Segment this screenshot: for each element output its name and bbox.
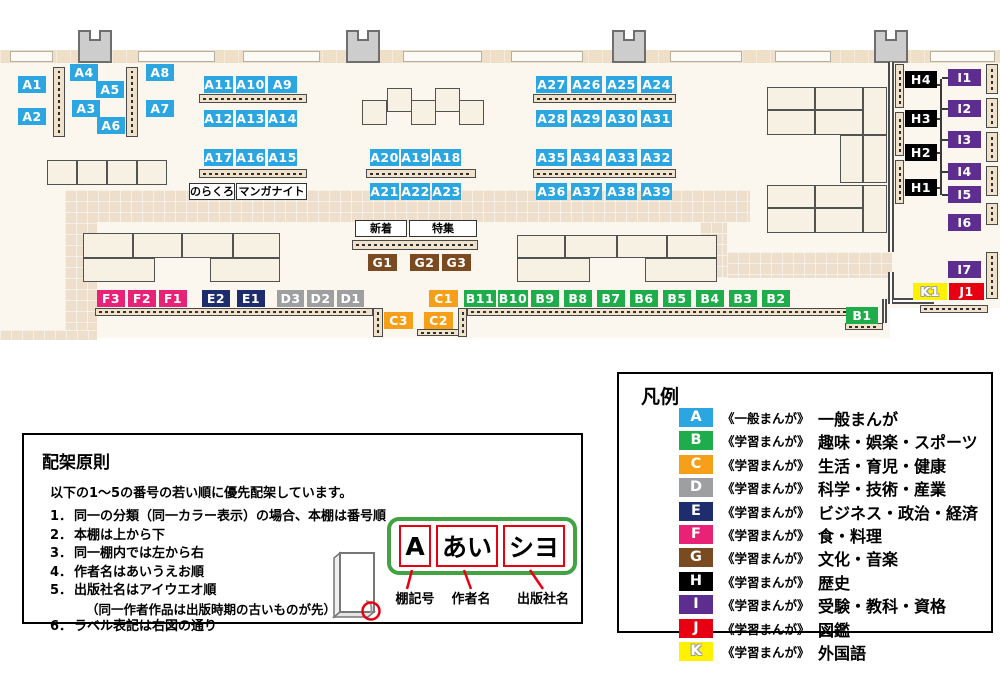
legend-chip-h: H (679, 572, 713, 591)
shelf-label-a17: A17 (204, 149, 233, 166)
legend-chip-a: A (679, 408, 713, 427)
shelf-label-b2: B2 (762, 290, 790, 307)
legend-label: ビジネス・政治・経済 (818, 500, 978, 524)
shelf-label-d2: D2 (307, 290, 334, 307)
table-rect (645, 258, 717, 282)
shelf-label-a3: A3 (72, 100, 100, 117)
wall-window (138, 51, 215, 62)
shelf-label-a21: A21 (370, 183, 399, 200)
shelf-strip (986, 98, 998, 128)
legend-row-i: I《学習まんが》受験・教科・資格 (679, 595, 946, 614)
shelf-label-c2: C2 (424, 312, 453, 329)
legend-type: 《学習まんが》 (722, 431, 818, 450)
table-rect (565, 235, 617, 258)
shelf-strip (986, 132, 998, 162)
shelf-label-a5: A5 (96, 81, 124, 98)
legend-chip-f: F (679, 525, 713, 544)
shelf-label-a34: A34 (571, 149, 602, 166)
shelf-label-a12: A12 (204, 110, 233, 127)
shelf-strip (373, 308, 383, 337)
shelf-label-i2: I2 (948, 100, 981, 117)
legend-row-d: D《学習まんが》科学・技術・産業 (679, 478, 946, 497)
pillar (78, 30, 112, 63)
pillar (346, 30, 380, 63)
shelf-label-a31: A31 (641, 110, 672, 127)
shelf-label-g1: G1 (368, 254, 397, 271)
interior-wall (882, 299, 887, 323)
label-caption-2: 出版社名 (512, 588, 574, 607)
legend-type: 《一般まんが》 (722, 408, 818, 427)
table-rect (863, 185, 887, 233)
shelf-label-e1: E1 (237, 290, 265, 307)
table-rect (815, 185, 863, 208)
legend-type: 《学習まんが》 (722, 548, 818, 567)
wall-window (243, 51, 320, 62)
shelf-strip (95, 308, 373, 316)
shelf-label-a2: A2 (18, 108, 46, 125)
legend-row-f: F《学習まんが》食・料理 (679, 525, 882, 544)
table-rect (83, 233, 133, 258)
wall-window (775, 51, 831, 62)
table-rect (767, 110, 815, 135)
shelf-strip (467, 308, 866, 316)
shelf-label-a4: A4 (70, 64, 98, 81)
table-rect (767, 208, 815, 233)
table-rect (362, 100, 387, 125)
legend-row-a: A《一般まんが》一般まんが (679, 408, 898, 427)
shelf-label-i1: I1 (948, 69, 981, 86)
principles-item-text: ラベル表記は右図の通り (74, 618, 217, 637)
shelf-label-h2: H2 (905, 144, 937, 161)
shelf-label-a13: A13 (236, 110, 265, 127)
legend-row-k: K《学習まんが》外国語 (679, 642, 866, 661)
legend-row-h: H《学習まんが》歴史 (679, 572, 850, 591)
shelf-strip (533, 169, 676, 178)
table-rect (435, 88, 460, 112)
shelf-label-h4: H4 (905, 71, 937, 88)
wall-window (670, 51, 742, 62)
shelf-strip (53, 67, 65, 137)
shelf-label-a24: A24 (641, 76, 672, 93)
label-caption-1: 作者名 (448, 588, 494, 607)
legend-type: 《学習まんが》 (722, 478, 818, 497)
shelf-strip (895, 160, 904, 204)
connector-line (940, 79, 942, 195)
table-rect (840, 135, 863, 183)
shelf-label-c1: C1 (429, 290, 458, 307)
shelf-label-f1: F1 (159, 290, 187, 307)
map-area: A1A2A4A5A3A6A8A7A11A10A9A12A13A14A17A16A… (0, 0, 1000, 360)
map-callout-1: マンガナイト (236, 183, 307, 200)
legend-title: 凡例 (641, 382, 679, 409)
shelf-strip (126, 67, 138, 137)
shelf-label-a32: A32 (641, 149, 672, 166)
principles-item-text: 本棚は上から下 (74, 527, 165, 546)
shelf-label-i3: I3 (948, 131, 981, 148)
shelf-label-a9: A9 (268, 76, 297, 93)
interior-wall (888, 62, 894, 252)
pillar-notch (623, 30, 635, 41)
walkway-segment (0, 330, 97, 340)
shelf-label-a7: A7 (146, 100, 174, 117)
shelf-label-a11: A11 (204, 76, 233, 93)
pillar-notch (357, 30, 369, 41)
label-segment-0: A (399, 525, 431, 567)
principles-item-text: 同一の分類（同一カラー表示）の場合、本棚は番号順 (74, 508, 386, 527)
book-illustration (328, 545, 388, 625)
shelf-label-a20: A20 (370, 149, 399, 166)
shelf-strip (986, 64, 998, 94)
principles-item-number: 6． (50, 618, 74, 637)
wall-window (10, 51, 53, 62)
legend-row-j: J《学習まんが》図鑑 (679, 619, 850, 638)
legend-row-b: B《学習まんが》趣味・娯楽・スポーツ (679, 431, 978, 450)
principles-item-number: 3． (50, 545, 74, 564)
table-rect (863, 135, 887, 183)
principles-item-text: 出版社名はアイウエオ順 (74, 582, 216, 601)
legend-chip-j: J (679, 619, 713, 638)
principles-item-text: 作者名はあいうえお順 (74, 564, 204, 583)
shelf-label-b9: B9 (531, 290, 559, 307)
principles-item-number: 1． (50, 508, 74, 527)
legend-label: 受験・教科・資格 (818, 593, 946, 617)
table-rect (77, 160, 107, 185)
shelf-label-j1: J1 (949, 283, 984, 300)
legend-chip-k: K (679, 642, 713, 661)
walkway-segment (727, 252, 892, 278)
shelf-label-a30: A30 (606, 110, 637, 127)
shelf-label-a28: A28 (536, 110, 567, 127)
shelf-label-f3: F3 (97, 290, 125, 307)
table-rect (667, 235, 717, 258)
principles-item-number: 5． (50, 582, 74, 601)
shelf-label-b5: B5 (663, 290, 691, 307)
table-rect (210, 258, 280, 282)
pillar (612, 30, 646, 63)
legend-type: 《学習まんが》 (722, 619, 818, 638)
principles-item-number: 2． (50, 527, 74, 546)
legend-box: 凡例 A《一般まんが》一般まんがB《学習まんが》趣味・娯楽・スポーツC《学習まん… (617, 372, 993, 633)
table-rect (815, 110, 863, 135)
shelf-strip (986, 203, 998, 225)
shelf-label-a27: A27 (536, 76, 567, 93)
wall-window (511, 51, 583, 62)
shelf-label-b10: B10 (498, 290, 528, 307)
legend-row-c: C《学習まんが》生活・育児・健康 (679, 455, 946, 474)
shelf-label-b11: B11 (464, 290, 496, 307)
shelf-label-d3: D3 (277, 290, 304, 307)
legend-label: 一般まんが (818, 406, 898, 430)
floor-map-page: A1A2A4A5A3A6A8A7A11A10A9A12A13A14A17A16A… (0, 0, 1000, 700)
legend-type: 《学習まんが》 (722, 525, 818, 544)
pillar-notch (89, 30, 101, 41)
label-segment-2: シヨ (503, 525, 565, 567)
shelf-label-a39: A39 (641, 183, 672, 200)
table-rect (767, 185, 815, 208)
legend-label: 食・料理 (818, 523, 882, 547)
legend-label: 趣味・娯楽・スポーツ (818, 429, 978, 453)
table-rect (137, 160, 167, 185)
shelf-label-g2: G2 (410, 254, 439, 271)
table-rect (517, 258, 590, 282)
shelf-label-b4: B4 (696, 290, 724, 307)
legend-label: 外国語 (818, 640, 866, 664)
shelf-label-a23: A23 (432, 183, 461, 200)
pillar-notch (885, 30, 897, 41)
shelf-label-a19: A19 (401, 149, 430, 166)
shelf-label-a35: A35 (536, 149, 567, 166)
shelf-label-b1: B1 (846, 307, 878, 324)
shelf-label-a6: A6 (97, 117, 125, 134)
shelf-strip (352, 240, 478, 250)
shelf-strip (920, 305, 988, 313)
shelf-label-i5: I5 (948, 186, 981, 203)
shelf-label-a29: A29 (571, 110, 602, 127)
legend-chip-c: C (679, 455, 713, 474)
table-rect (47, 160, 77, 185)
shelf-label-a16: A16 (236, 149, 265, 166)
shelf-label-a37: A37 (571, 183, 602, 200)
table-rect (459, 100, 484, 125)
legend-type: 《学習まんが》 (722, 572, 818, 591)
shelf-strip (199, 169, 307, 178)
legend-type: 《学習まんが》 (722, 595, 818, 614)
shelf-strip (986, 252, 998, 299)
legend-label: 文化・音楽 (818, 546, 898, 570)
shelf-strip (366, 169, 476, 178)
principles-item: 6．ラベル表記は右図の通り (42, 618, 571, 637)
shelf-label-a22: A22 (401, 183, 430, 200)
label-segment-1: あい (436, 525, 498, 567)
shelf-label-a1: A1 (18, 76, 46, 93)
shelf-strip (199, 94, 307, 103)
shelf-label-d1: D1 (337, 290, 364, 307)
shelf-label-a15: A15 (268, 149, 297, 166)
shelf-label-a33: A33 (606, 149, 637, 166)
principles-intro: 以下の1～5の番号の若い順に優先配架しています。 (42, 482, 571, 501)
shelf-label-i7: I7 (948, 261, 981, 278)
legend-label: 歴史 (818, 570, 850, 594)
table-rect (815, 87, 863, 110)
label-caption-0: 棚記号 (392, 588, 438, 607)
shelf-label-a38: A38 (606, 183, 637, 200)
map-callout-3: 特集 (409, 220, 477, 237)
legend-chip-i: I (679, 595, 713, 614)
legend-label: 生活・育児・健康 (818, 453, 946, 477)
shelf-strip (533, 94, 676, 103)
shelf-label-a26: A26 (571, 76, 602, 93)
shelf-label-a10: A10 (236, 76, 265, 93)
shelf-label-e2: E2 (202, 290, 230, 307)
shelf-strip (986, 166, 998, 196)
legend-type: 《学習まんが》 (722, 642, 818, 661)
shelf-label-a18: A18 (432, 149, 461, 166)
legend-type: 《学習まんが》 (722, 502, 818, 521)
shelf-label-b8: B8 (564, 290, 592, 307)
shelf-label-c3: C3 (384, 312, 413, 329)
wall-window (403, 51, 482, 62)
shelf-label-k1: K1 (913, 283, 947, 300)
principles-item-number: 4． (50, 564, 74, 583)
shelf-label-b3: B3 (729, 290, 757, 307)
legend-label: 図鑑 (818, 617, 850, 641)
shelf-label-a25: A25 (606, 76, 637, 93)
principles-title: 配架原則 (42, 448, 571, 473)
legend-row-e: E《学習まんが》ビジネス・政治・経済 (679, 502, 978, 521)
legend-chip-e: E (679, 502, 713, 521)
table-rect (107, 160, 137, 185)
shelf-strip (895, 64, 904, 108)
table-rect (182, 233, 233, 258)
table-rect (233, 233, 280, 258)
shelf-label-b6: B6 (630, 290, 658, 307)
legend-chip-b: B (679, 431, 713, 450)
table-rect (617, 235, 667, 258)
table-rect (411, 100, 436, 125)
table-rect (815, 208, 863, 233)
shelf-strip (845, 323, 883, 330)
pillar (874, 30, 908, 63)
shelf-label-a14: A14 (268, 110, 297, 127)
shelf-label-diagram: Aあいシヨ (387, 517, 577, 575)
shelf-strip (417, 329, 460, 336)
shelf-label-i6: I6 (948, 214, 981, 231)
legend-row-g: G《学習まんが》文化・音楽 (679, 548, 898, 567)
legend-label: 科学・技術・産業 (818, 476, 946, 500)
shelf-label-h3: H3 (905, 110, 937, 127)
map-callout-0: のらくろ (189, 183, 235, 200)
legend-chip-g: G (679, 548, 713, 567)
principles-item-text: 同一棚内では左から右 (74, 545, 204, 564)
legend-chip-d: D (679, 478, 713, 497)
shelf-strip (895, 112, 904, 156)
shelf-label-i4: I4 (948, 163, 981, 180)
shelf-label-g3: G3 (442, 254, 471, 271)
shelf-label-h1: H1 (905, 179, 937, 196)
legend-type: 《学習まんが》 (722, 455, 818, 474)
table-rect (517, 235, 565, 258)
shelf-strip (458, 308, 467, 337)
table-rect (133, 233, 182, 258)
table-rect (387, 88, 412, 112)
shelf-label-f2: F2 (128, 290, 156, 307)
table-rect (83, 258, 155, 282)
map-callout-2: 新着 (355, 220, 407, 237)
wall-window (930, 51, 995, 62)
table-rect (767, 87, 815, 110)
shelf-label-a8: A8 (146, 64, 174, 81)
table-rect (863, 87, 887, 135)
shelf-label-a36: A36 (536, 183, 567, 200)
shelf-label-b7: B7 (597, 290, 625, 307)
